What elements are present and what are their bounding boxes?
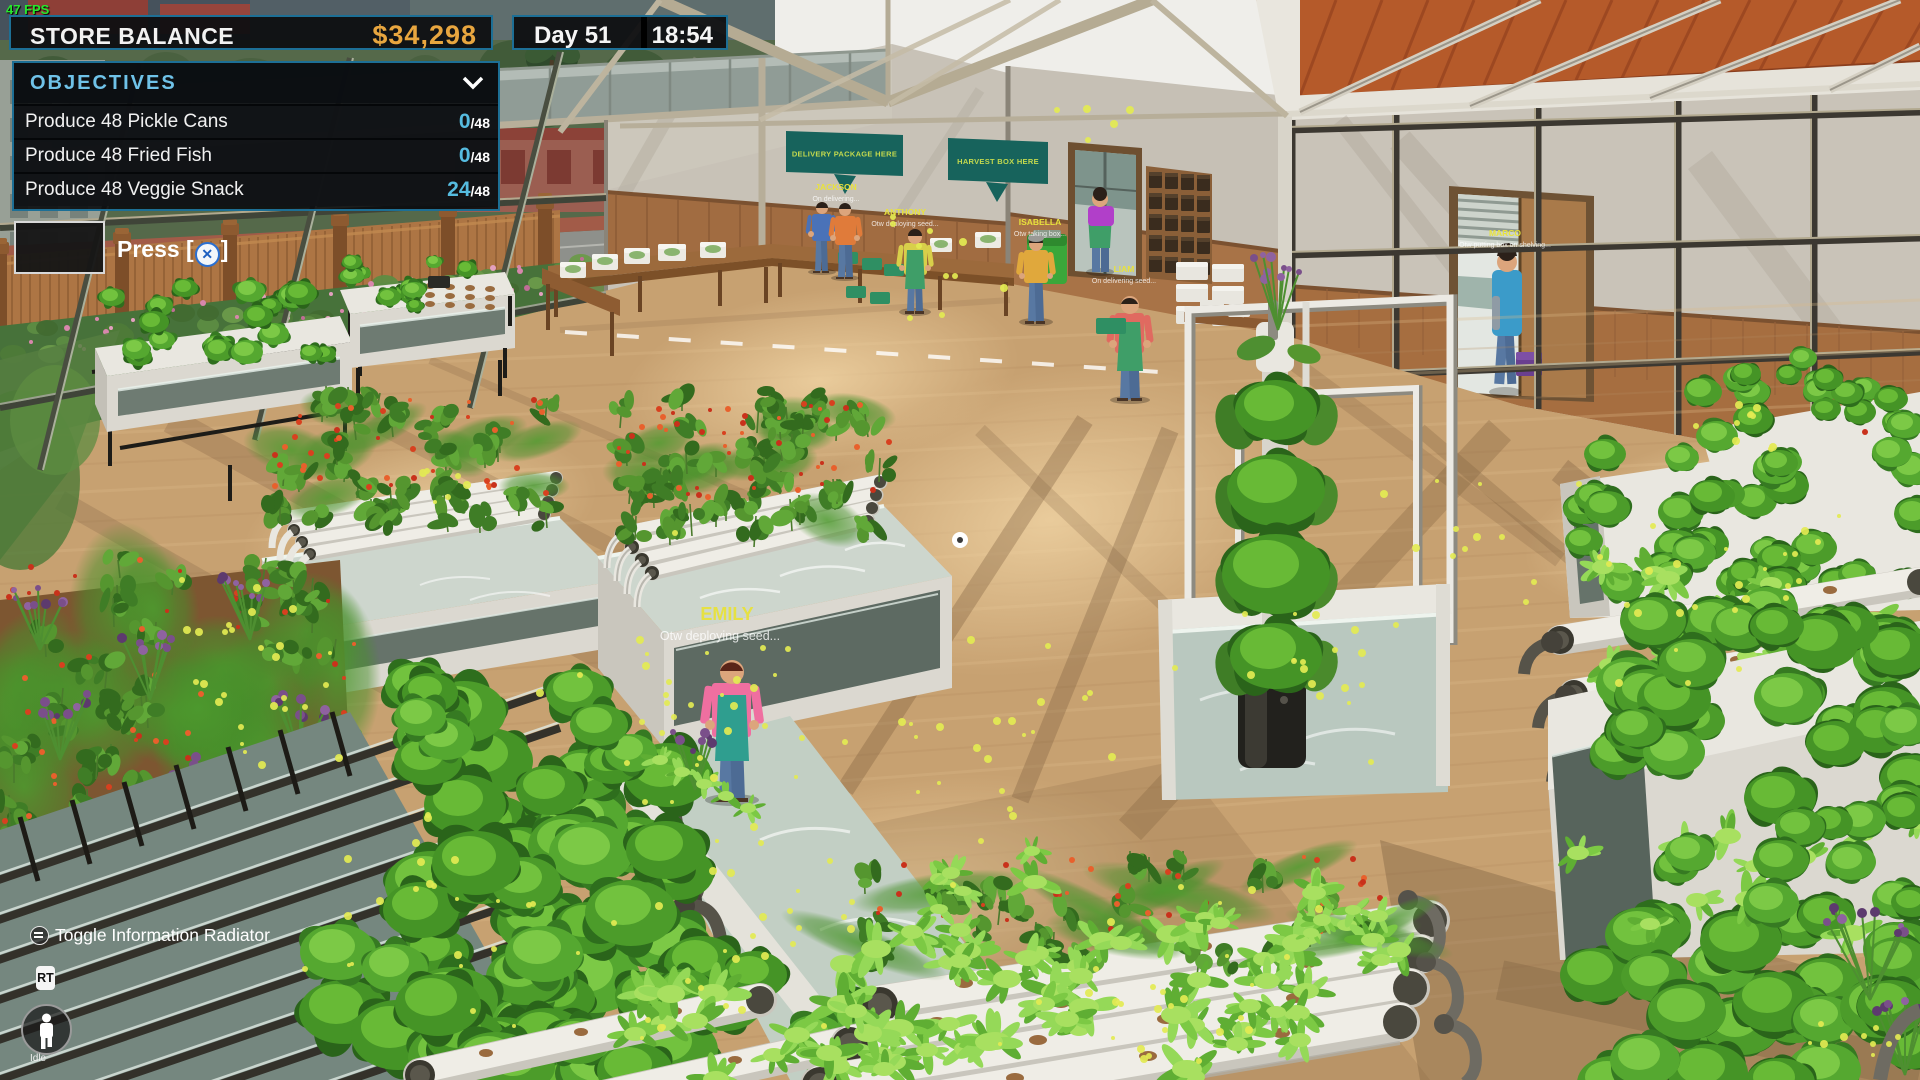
svg-text:Otw putting box on shelving...: Otw putting box on shelving... [1459,242,1551,249]
svg-text:MARCO: MARCO [1489,228,1521,238]
svg-text:Otw deploying seed...: Otw deploying seed... [871,221,938,228]
svg-text:ISABELLA: ISABELLA [1019,217,1062,227]
svg-text:Otw taking box...: Otw taking box... [1014,231,1066,238]
svg-text:Otw deploying seed...: Otw deploying seed... [660,629,780,643]
svg-text:HARVEST BOX HERE: HARVEST BOX HERE [957,157,1039,166]
svg-text:On delivering...: On delivering... [812,196,859,203]
svg-text:JACKSON: JACKSON [815,182,857,192]
svg-text:DELIVERY PACKAGE HERE: DELIVERY PACKAGE HERE [792,150,897,159]
svg-text:ANTHONY: ANTHONY [884,207,926,217]
svg-text:EMILY: EMILY [700,604,753,624]
svg-text:LIAM: LIAM [1114,264,1135,274]
svg-text:On delivering seed...: On delivering seed... [1092,278,1156,285]
